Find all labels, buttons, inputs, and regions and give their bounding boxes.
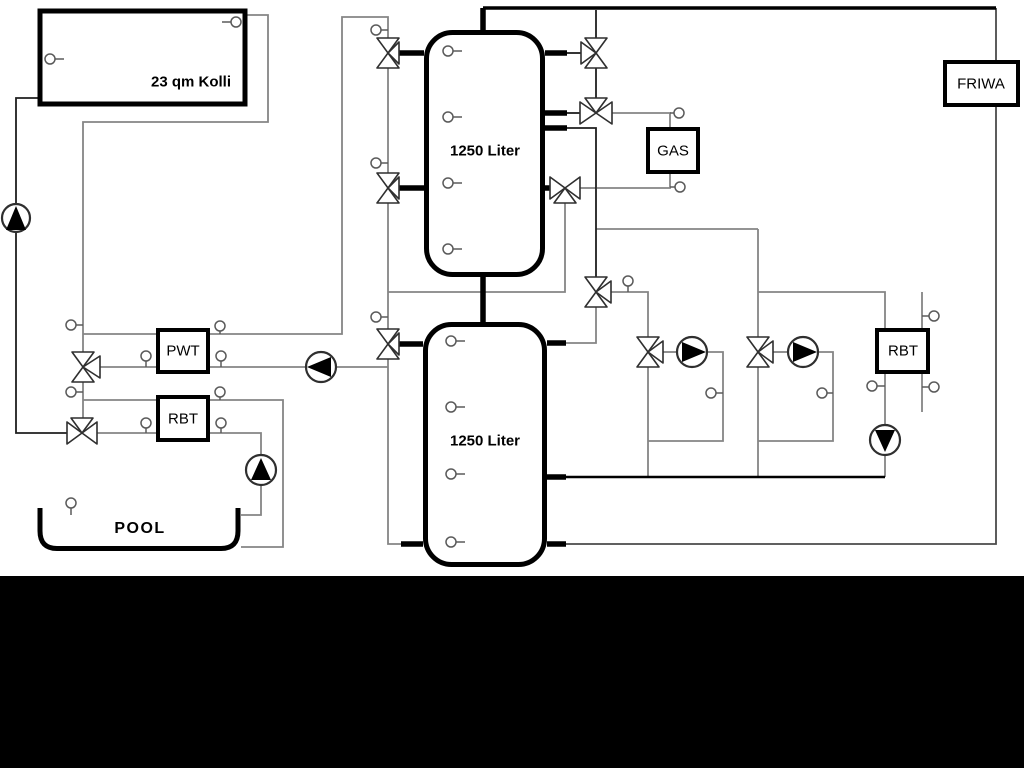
temp-sensor	[443, 46, 453, 56]
pump-rbt-right	[870, 425, 900, 455]
valve-gas-supply	[580, 98, 612, 124]
pipe	[210, 433, 261, 455]
temp-sensor	[66, 387, 76, 397]
valve-tank-lower-left	[377, 329, 399, 359]
pump-heating-circuit-1	[677, 337, 707, 367]
pipe	[565, 307, 596, 343]
temp-sensor	[45, 54, 55, 64]
valve-pwt-mixing	[72, 352, 100, 382]
temp-sensor	[446, 537, 456, 547]
component-boxes	[40, 11, 1018, 565]
temp-sensor	[371, 312, 381, 322]
temp-sensor	[443, 112, 453, 122]
temp-sensor	[231, 17, 241, 27]
temp-sensor	[446, 469, 456, 479]
temp-sensor	[216, 418, 226, 428]
temp-sensor	[443, 244, 453, 254]
pump-pool	[246, 455, 276, 485]
temp-sensor	[446, 336, 456, 346]
temp-sensor	[706, 388, 716, 398]
temp-sensor	[371, 158, 381, 168]
pump-heating-circuit-2	[788, 337, 818, 367]
pump-pwt-loop	[306, 352, 336, 382]
temp-sensor	[215, 387, 225, 397]
buffer-tank-upper-label: 1250 Liter	[450, 144, 520, 159]
valve-tank-upper-left-top	[377, 38, 399, 68]
rbt-right-label: RBT	[888, 344, 918, 359]
temp-sensor	[674, 108, 684, 118]
valve-heating-circuit-1	[637, 337, 663, 367]
pool-label: POOL	[114, 521, 165, 537]
pipe	[758, 292, 885, 328]
pipe	[597, 174, 670, 188]
temp-sensor	[446, 402, 456, 412]
friwa-label: FRIWA	[957, 77, 1005, 92]
hydraulic-schematic: 23 qm Kolli 1250 Liter 1250 Liter PWT RB…	[0, 0, 1024, 768]
temp-sensor	[443, 178, 453, 188]
letterbox-mask	[0, 576, 1024, 768]
temp-sensor	[623, 276, 633, 286]
pwt-label: PWT	[166, 344, 199, 359]
valve-heating-circuit-2	[747, 337, 773, 367]
temp-sensor	[371, 25, 381, 35]
valve-heating-supply	[585, 277, 611, 307]
temp-sensor	[216, 351, 226, 361]
valve-pool-mixing	[67, 418, 97, 444]
temp-sensor	[817, 388, 827, 398]
pipe	[612, 113, 670, 127]
rbt-left-label: RBT	[168, 412, 198, 427]
solar-collector-label: 23 qm Kolli	[151, 75, 231, 90]
pipe	[241, 485, 261, 515]
temp-sensor	[215, 321, 225, 331]
valve-gas-return	[550, 177, 580, 203]
buffer-tank-lower-label: 1250 Liter	[450, 434, 520, 449]
pipe	[611, 292, 648, 337]
pipe	[388, 359, 402, 544]
temp-sensor	[66, 320, 76, 330]
temp-sensor	[929, 382, 939, 392]
temp-sensor	[66, 498, 76, 508]
valve-tank-top-right	[581, 38, 607, 68]
temp-sensor	[929, 311, 939, 321]
valve-tank-upper-left-bottom	[377, 173, 399, 203]
pipe	[16, 232, 67, 433]
temp-sensor	[675, 182, 685, 192]
gas-label: GAS	[657, 144, 689, 159]
temp-sensor	[867, 381, 877, 391]
temp-sensor	[141, 418, 151, 428]
pipe	[16, 98, 40, 204]
pump-solar	[2, 204, 30, 232]
temp-sensor	[141, 351, 151, 361]
